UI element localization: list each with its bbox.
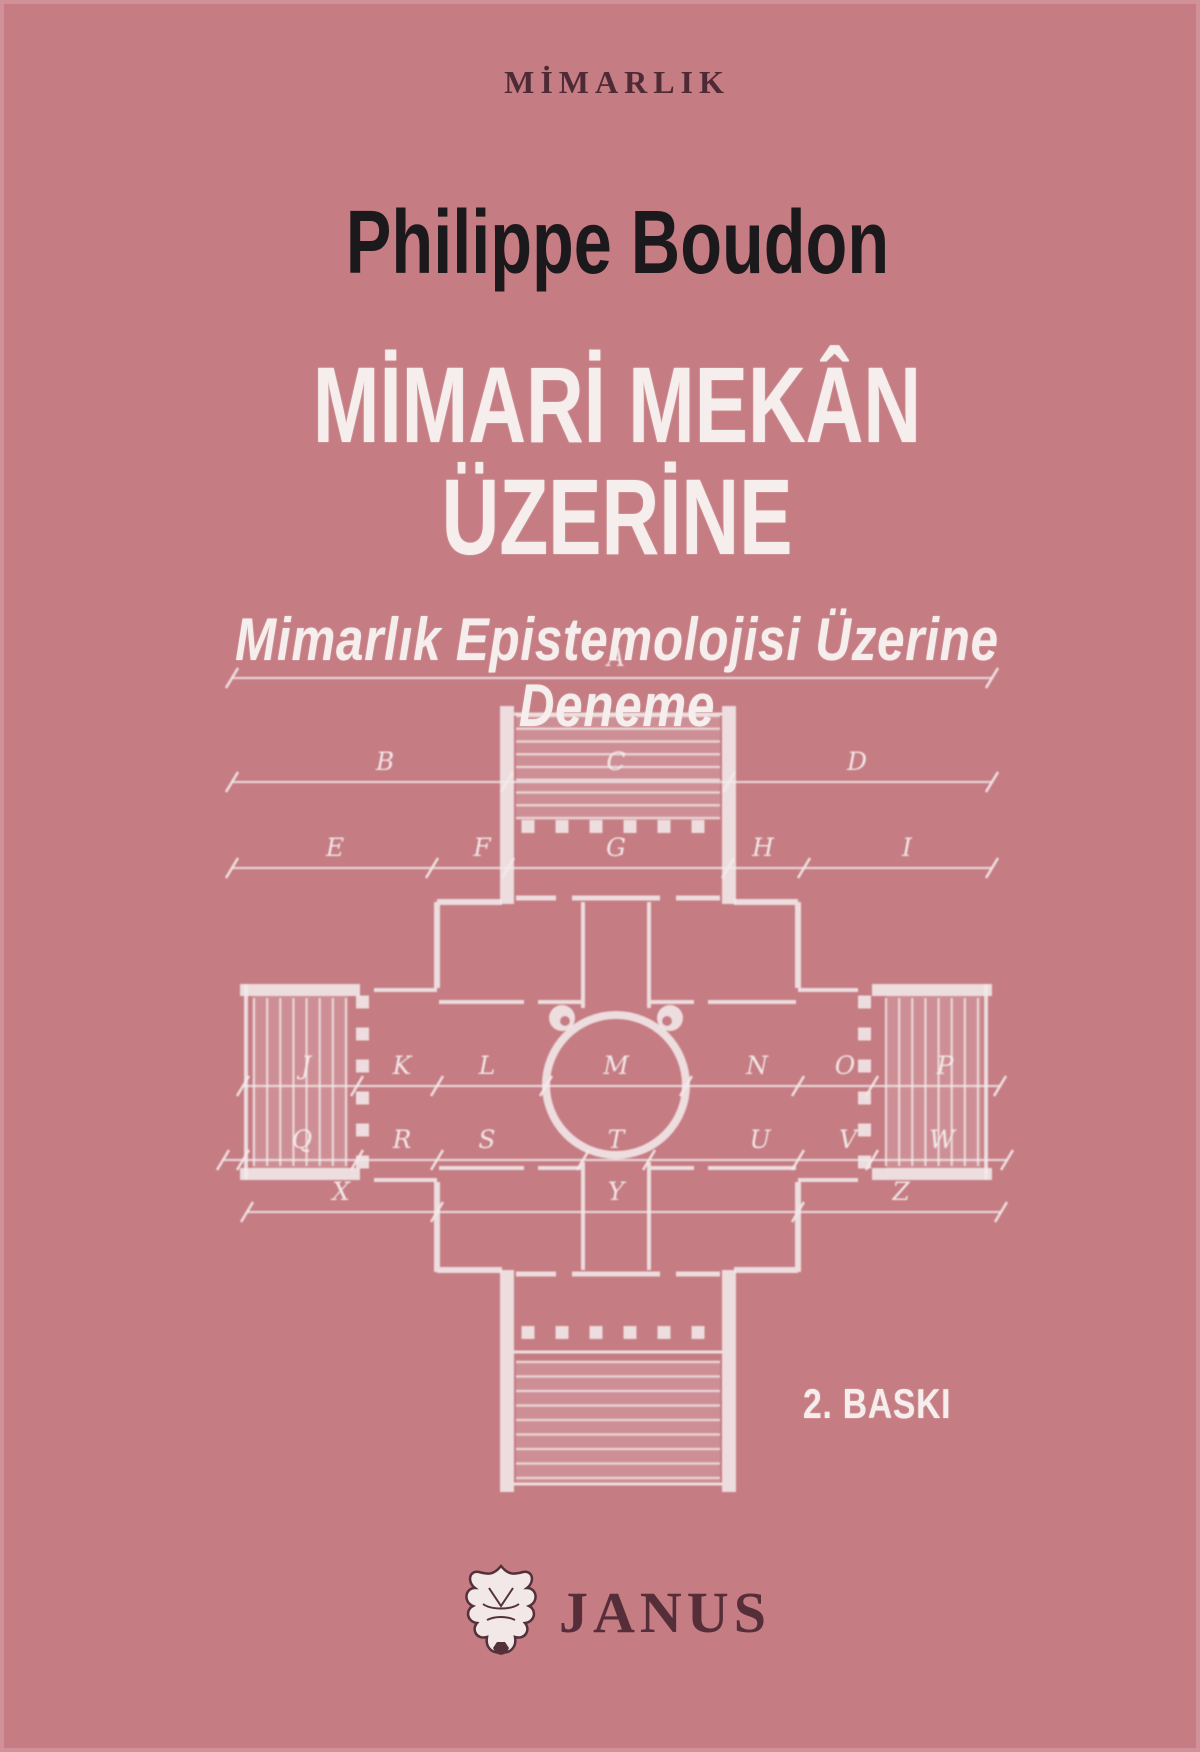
svg-text:L: L xyxy=(478,1051,496,1080)
svg-text:E: E xyxy=(325,833,344,862)
publisher-lockup: JANUS xyxy=(0,1560,1200,1658)
cover-text-column: MİMARLIK Philippe Boudon MİMARİ MEKÂN ÜZ… xyxy=(34,0,1200,755)
edition-badge: 2. BASKI xyxy=(803,1382,988,1436)
svg-text:K: K xyxy=(392,1051,413,1080)
svg-text:R: R xyxy=(392,1125,412,1154)
series-label: MİMARLIK xyxy=(34,64,1200,101)
svg-text:M: M xyxy=(602,1051,630,1080)
svg-text:Y: Y xyxy=(608,1177,627,1206)
svg-text:T: T xyxy=(608,1125,627,1154)
svg-text:O: O xyxy=(835,1051,856,1080)
janus-logo-icon xyxy=(463,1560,539,1658)
author-name: Philippe Boudon xyxy=(34,197,1200,315)
book-title-text: MİMARİ MEKÂN ÜZERİNE xyxy=(186,349,1049,573)
svg-text:F: F xyxy=(472,833,492,862)
svg-text:Z: Z xyxy=(891,1177,910,1206)
book-cover: ABCDEFGHIJKLMNOPQRSTUVWXYZ MİMARLIK Phil… xyxy=(0,0,1200,1752)
svg-text:N: N xyxy=(745,1051,769,1080)
svg-text:P: P xyxy=(936,1051,955,1080)
svg-text:G: G xyxy=(606,833,626,862)
spiral-stair-icon xyxy=(549,1005,575,1031)
publisher-name: JANUS xyxy=(559,1573,771,1646)
svg-text:V: V xyxy=(839,1125,860,1154)
svg-text:W: W xyxy=(929,1125,957,1154)
svg-text:X: X xyxy=(330,1177,351,1206)
book-subtitle: Mimarlık Epistemolojisi Üzerine Deneme xyxy=(34,607,1200,755)
svg-text:U: U xyxy=(749,1125,771,1154)
spiral-stair-icon xyxy=(657,1005,683,1031)
svg-text:S: S xyxy=(478,1125,495,1154)
book-subtitle-text: Mimarlık Epistemolojisi Üzerine Deneme xyxy=(139,607,1095,739)
edition-text: 2. BASKI xyxy=(803,1382,951,1426)
svg-text:I: I xyxy=(901,833,913,862)
svg-text:H: H xyxy=(751,833,775,862)
author-name-text: Philippe Boudon xyxy=(345,197,888,289)
svg-text:Q: Q xyxy=(292,1125,313,1154)
book-title: MİMARİ MEKÂN ÜZERİNE xyxy=(34,349,1200,599)
